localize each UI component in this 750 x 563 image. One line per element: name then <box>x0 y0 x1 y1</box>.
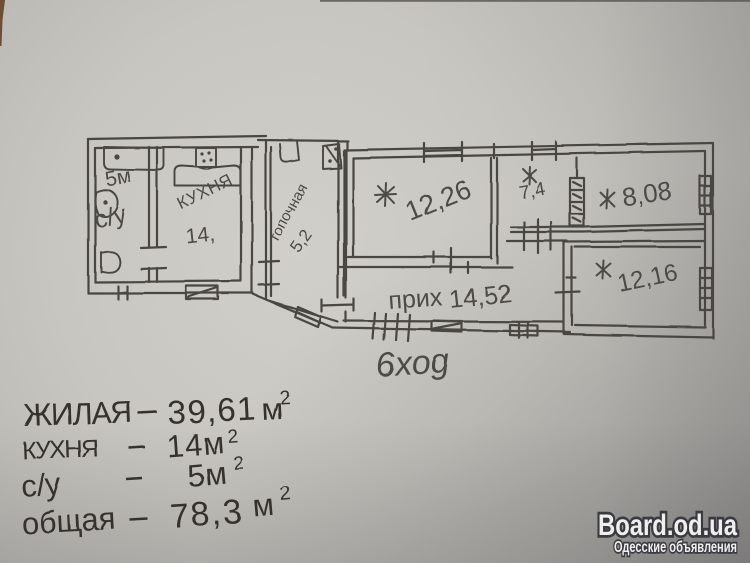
svg-text:2: 2 <box>227 426 239 448</box>
svg-text:2: 2 <box>280 483 293 506</box>
svg-text:общая: общая <box>21 501 117 541</box>
svg-text:5м: 5м <box>185 455 228 494</box>
svg-text:6хоg: 6хоg <box>375 342 451 385</box>
svg-text:5м: 5м <box>103 164 133 191</box>
svg-text:Одесские объявления: Одесские объявления <box>614 539 737 556</box>
svg-text:14,: 14, <box>185 223 216 249</box>
svg-text:Board.od.ua: Board.od.ua <box>598 509 737 542</box>
svg-text:39,61: 39,61 <box>166 389 256 431</box>
svg-text:2: 2 <box>279 387 291 409</box>
svg-text:с/у: с/у <box>20 466 62 504</box>
svg-text:2: 2 <box>233 453 245 475</box>
svg-text:КУХНЯ: КУХНЯ <box>21 434 100 465</box>
svg-text:прих: прих <box>387 283 443 315</box>
svg-text:м: м <box>252 487 276 524</box>
svg-text:78,3: 78,3 <box>169 493 243 536</box>
svg-text:ЖИЛАЯ: ЖИЛАЯ <box>23 394 134 433</box>
